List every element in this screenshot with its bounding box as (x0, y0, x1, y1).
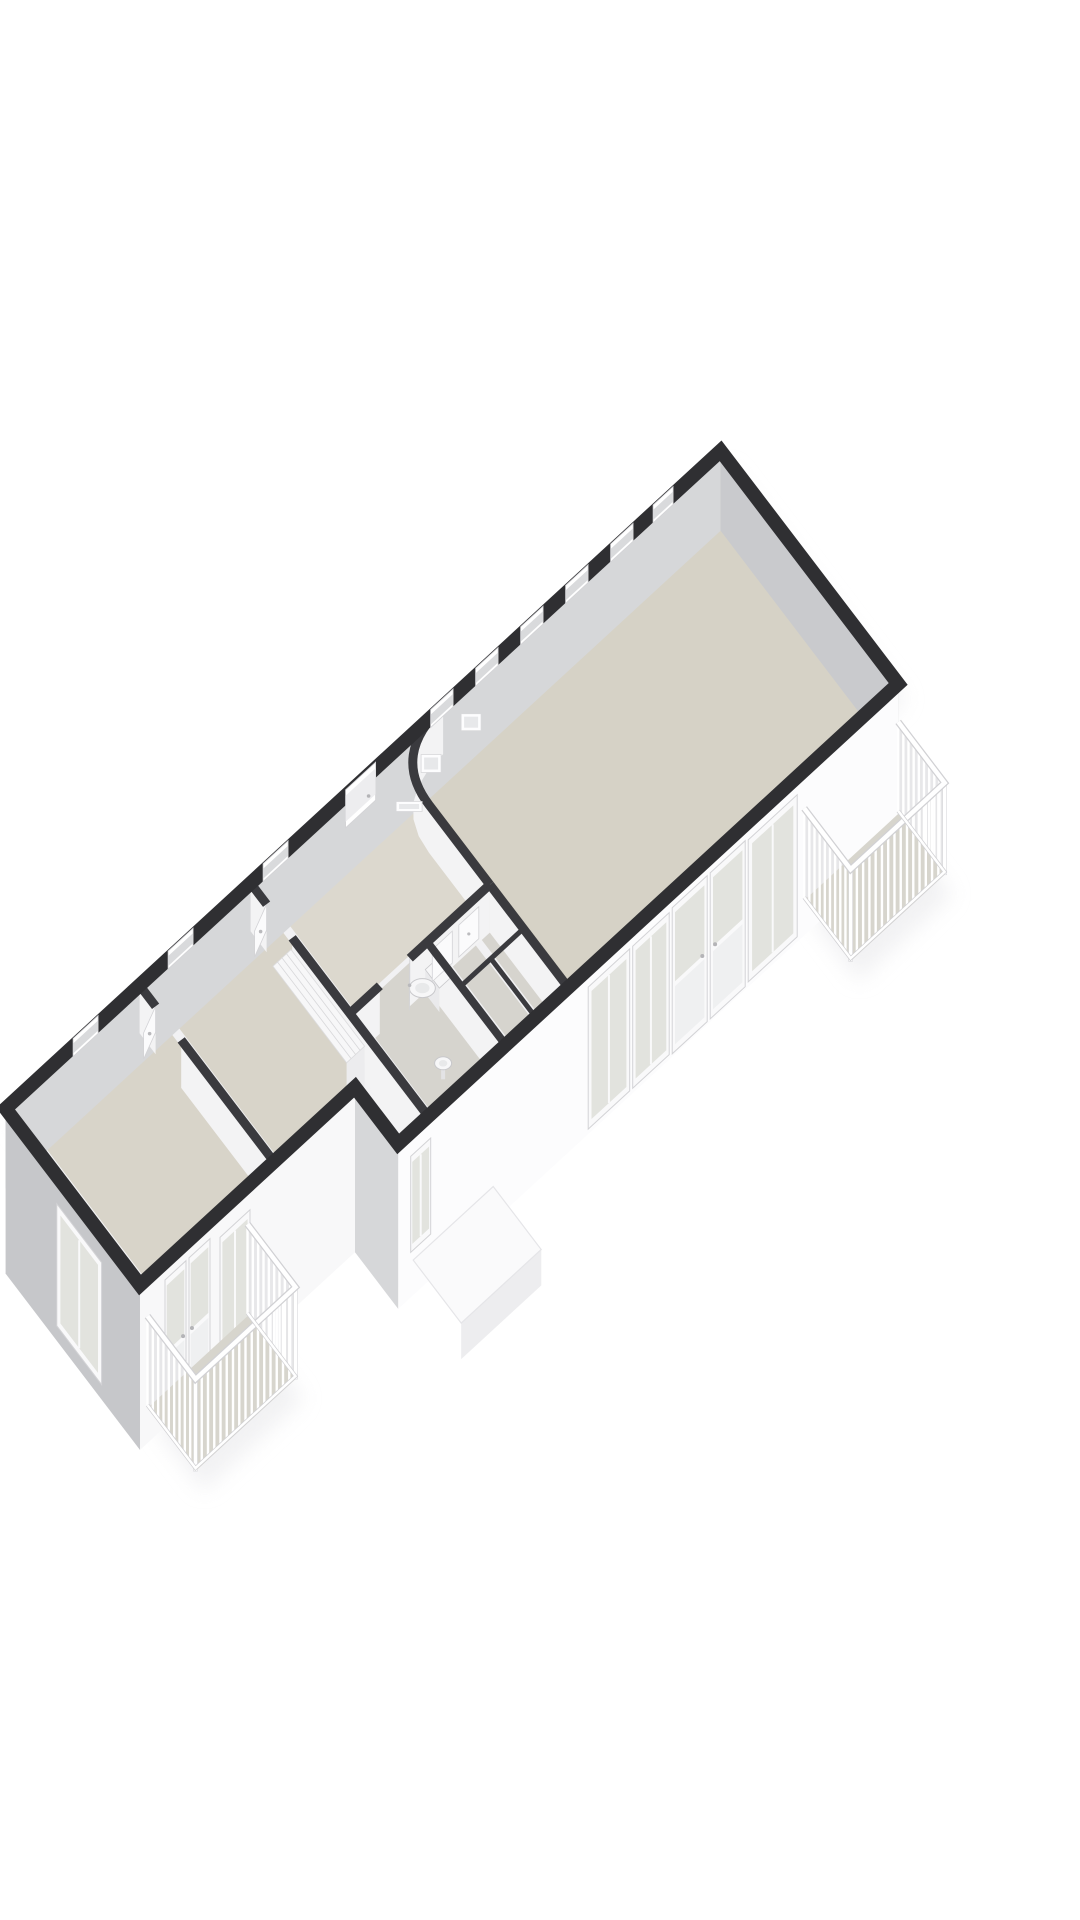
living-balcony-door-left (672, 876, 707, 1054)
floorplan-viewport (0, 0, 1080, 1920)
living-balcony-door-right (710, 841, 745, 1019)
nw-punched-window (461, 714, 481, 731)
floorplan-3d-render (0, 0, 1080, 1920)
nw-punched-window (421, 755, 441, 773)
nw-slit-window (396, 802, 422, 812)
bedroom2-window (411, 1138, 431, 1252)
